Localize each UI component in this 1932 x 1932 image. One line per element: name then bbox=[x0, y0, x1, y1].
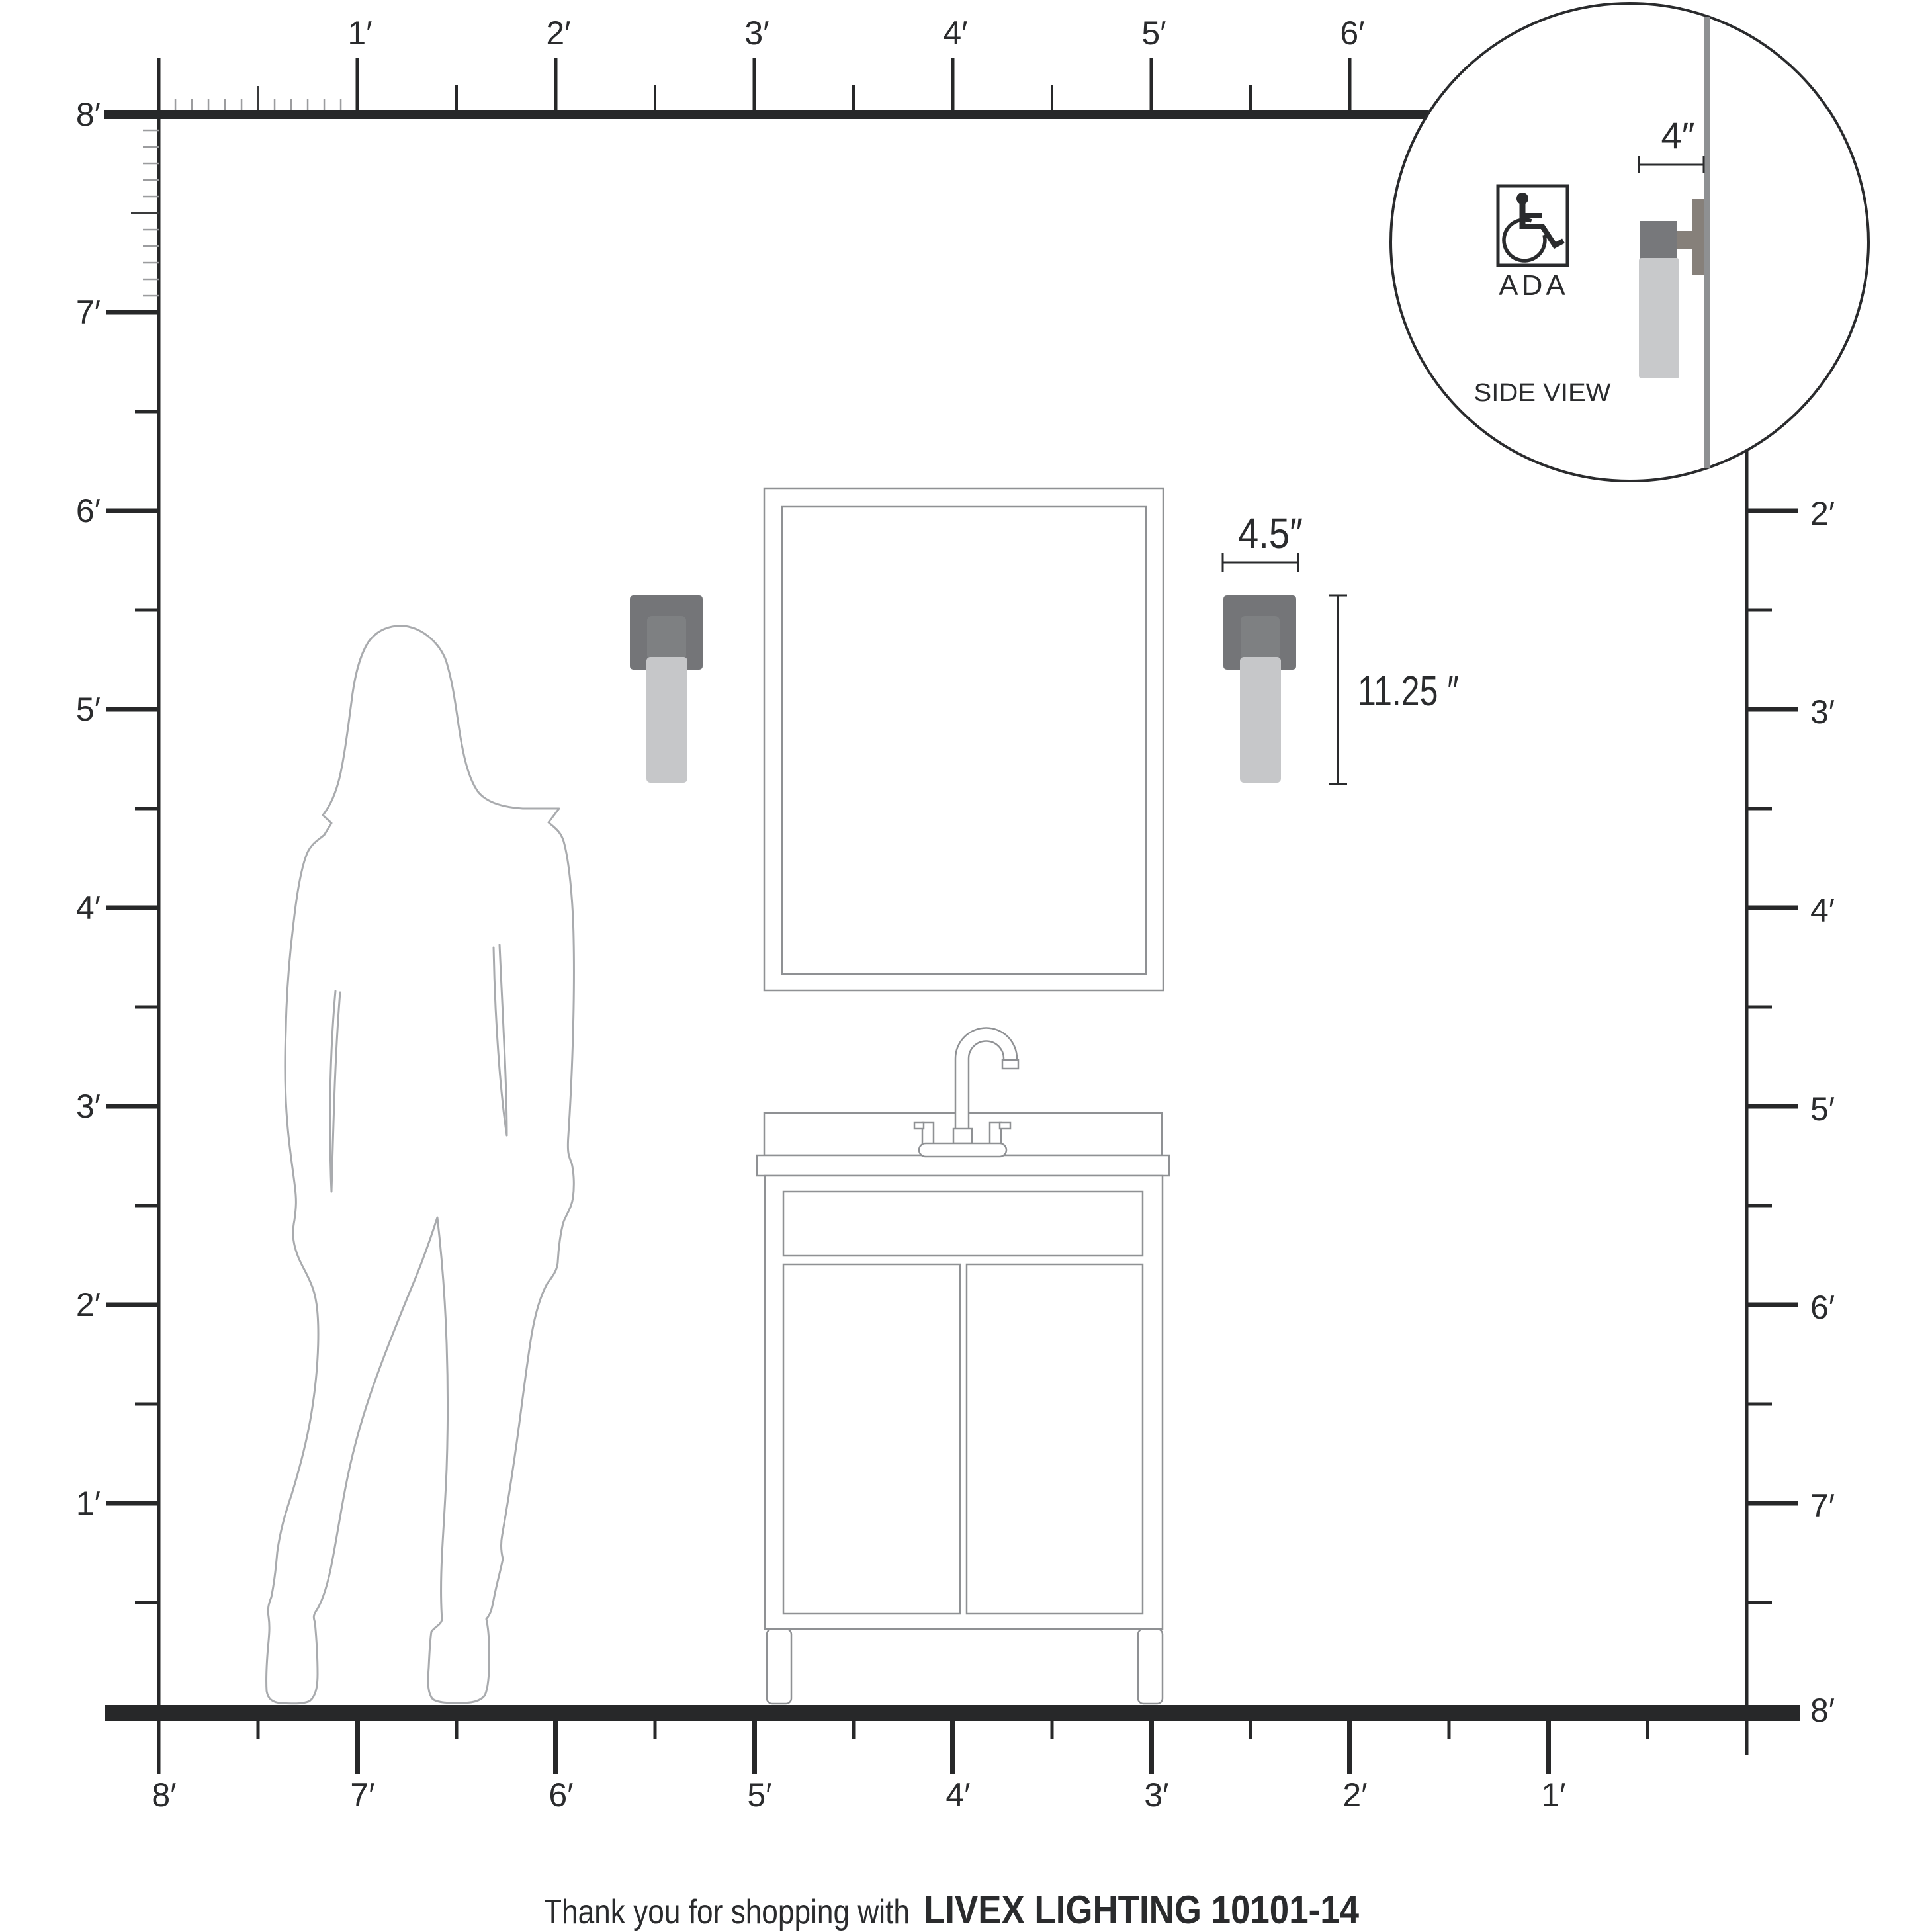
svg-text:SIDE VIEW: SIDE VIEW bbox=[1474, 379, 1611, 407]
svg-text:LIVEX LIGHTING 10101-14: LIVEX LIGHTING 10101-14 bbox=[924, 1888, 1360, 1932]
svg-text:6′: 6′ bbox=[1810, 1289, 1835, 1326]
svg-text:7′: 7′ bbox=[76, 294, 101, 331]
svg-text:8′: 8′ bbox=[152, 1777, 176, 1814]
svg-text:11.25 ″: 11.25 ″ bbox=[1358, 667, 1459, 715]
svg-text:4′: 4′ bbox=[76, 889, 101, 926]
svg-text:2′: 2′ bbox=[76, 1286, 101, 1323]
svg-text:2′: 2′ bbox=[546, 15, 570, 52]
svg-text:4.5″: 4.5″ bbox=[1238, 509, 1303, 557]
svg-text:1′: 1′ bbox=[347, 15, 372, 52]
svg-text:2′: 2′ bbox=[1342, 1777, 1367, 1814]
svg-text:5′: 5′ bbox=[1141, 15, 1166, 52]
svg-text:4′: 4′ bbox=[943, 15, 967, 52]
svg-text:Thank you for shopping with: Thank you for shopping with bbox=[544, 1893, 910, 1931]
svg-text:1′: 1′ bbox=[76, 1485, 101, 1522]
svg-text:3′: 3′ bbox=[1810, 693, 1835, 730]
svg-text:7′: 7′ bbox=[1810, 1487, 1835, 1524]
svg-text:5′: 5′ bbox=[1810, 1090, 1835, 1127]
svg-text:3′: 3′ bbox=[744, 15, 769, 52]
svg-text:3′: 3′ bbox=[76, 1088, 101, 1125]
svg-text:5′: 5′ bbox=[747, 1777, 771, 1814]
svg-text:2′: 2′ bbox=[1810, 495, 1835, 532]
svg-text:1′: 1′ bbox=[1541, 1777, 1565, 1814]
svg-text:6′: 6′ bbox=[76, 492, 101, 529]
svg-text:4″: 4″ bbox=[1661, 114, 1695, 156]
svg-text:8′: 8′ bbox=[76, 96, 101, 133]
svg-text:4′: 4′ bbox=[1810, 892, 1835, 929]
svg-text:3′: 3′ bbox=[1144, 1777, 1168, 1814]
svg-text:8′: 8′ bbox=[1810, 1692, 1835, 1729]
svg-text:ADA: ADA bbox=[1499, 269, 1568, 302]
svg-text:6′: 6′ bbox=[1340, 15, 1364, 52]
svg-text:7′: 7′ bbox=[350, 1777, 374, 1814]
svg-text:6′: 6′ bbox=[549, 1777, 573, 1814]
svg-text:5′: 5′ bbox=[76, 691, 101, 728]
svg-text:4′: 4′ bbox=[945, 1777, 970, 1814]
